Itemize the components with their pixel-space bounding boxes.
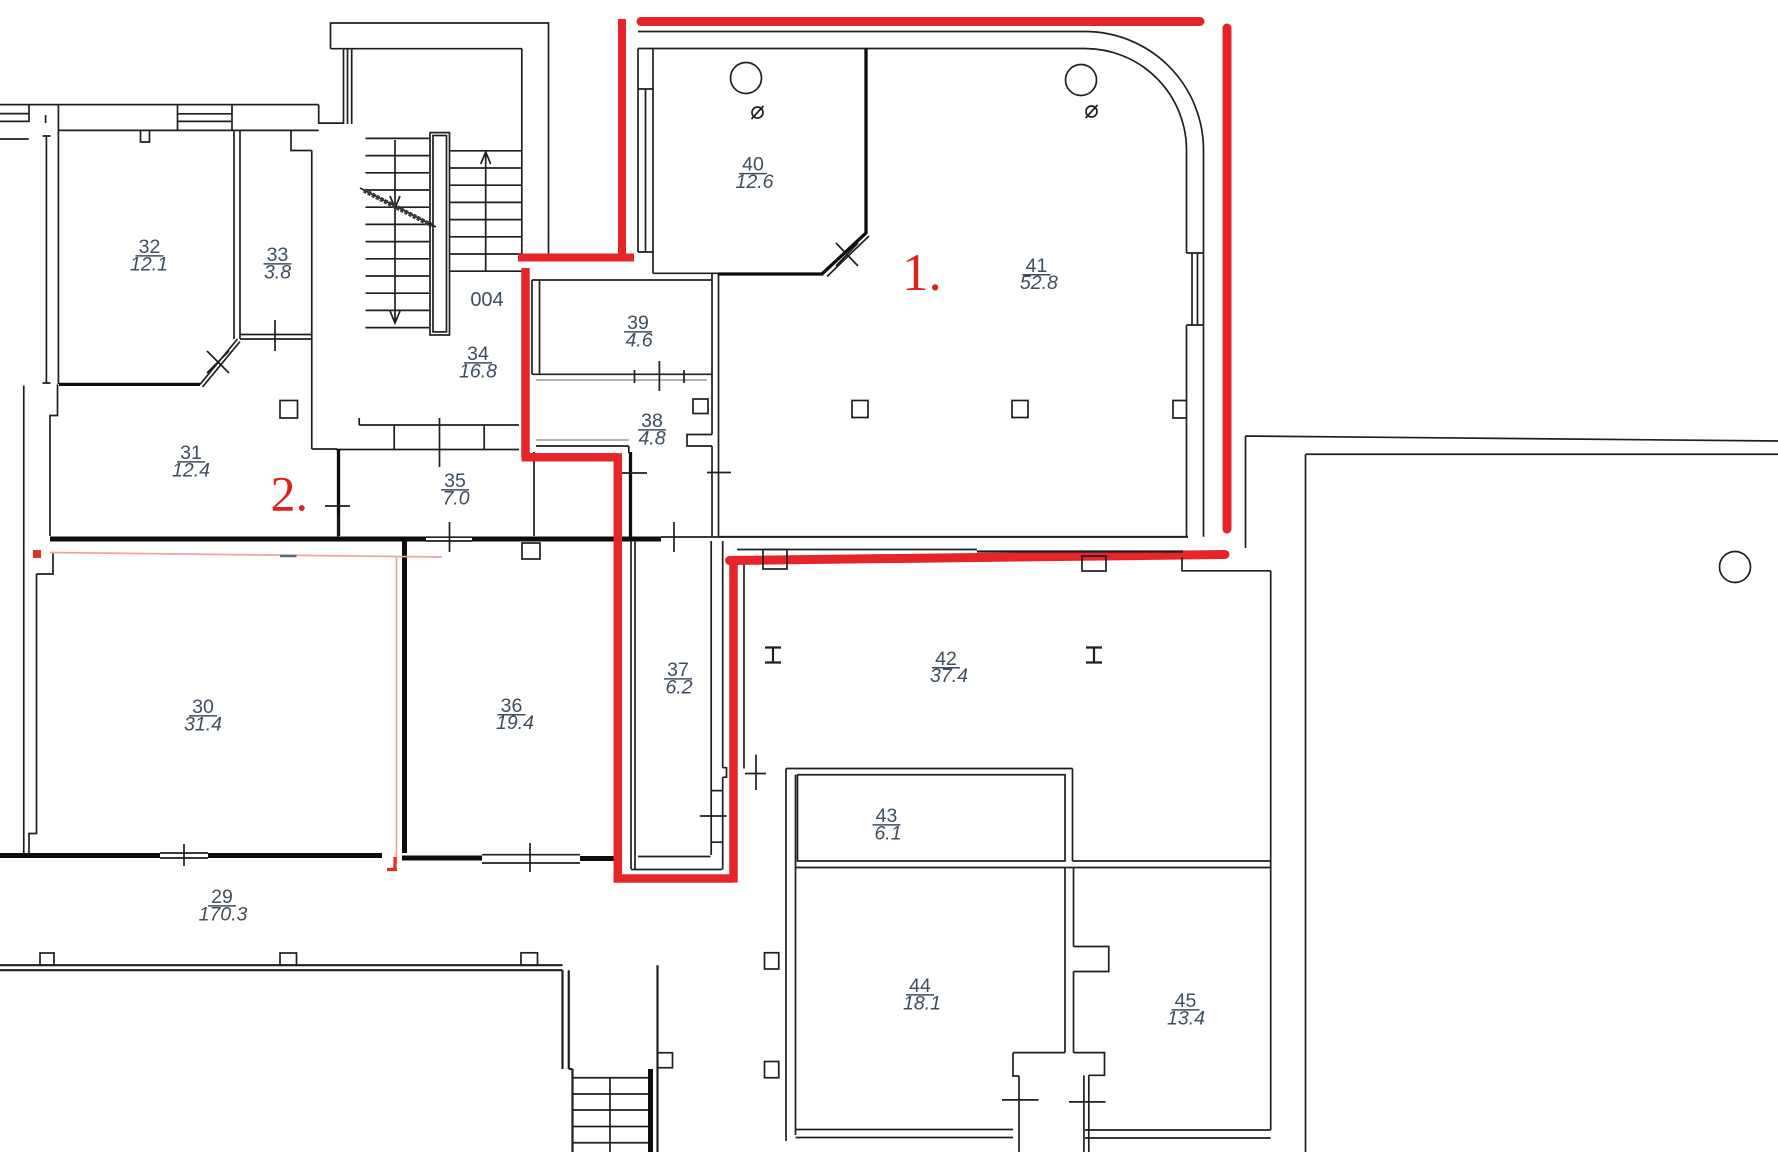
svg-text:12.6: 12.6 xyxy=(736,171,774,193)
svg-text:6.2: 6.2 xyxy=(665,677,692,699)
svg-text:7.0: 7.0 xyxy=(442,488,469,510)
svg-text:16.8: 16.8 xyxy=(459,360,497,382)
svg-text:13.4: 13.4 xyxy=(1167,1008,1205,1030)
svg-text:37.4: 37.4 xyxy=(930,665,968,687)
svg-text:1.: 1. xyxy=(902,244,942,302)
svg-text:3.8: 3.8 xyxy=(264,261,291,283)
svg-text:170.3: 170.3 xyxy=(199,904,248,926)
svg-text:18.1: 18.1 xyxy=(903,993,941,1015)
svg-text:12.1: 12.1 xyxy=(130,254,168,276)
svg-text:19.4: 19.4 xyxy=(496,712,534,734)
svg-text:4.6: 4.6 xyxy=(625,330,652,352)
svg-text:6.1: 6.1 xyxy=(874,823,901,845)
svg-text:4.8: 4.8 xyxy=(638,428,665,450)
svg-text:52.8: 52.8 xyxy=(1020,272,1058,294)
svg-text:2.: 2. xyxy=(271,466,309,522)
svg-text:004: 004 xyxy=(470,289,503,311)
svg-text:31.4: 31.4 xyxy=(184,714,222,736)
svg-text:12.4: 12.4 xyxy=(172,460,210,482)
